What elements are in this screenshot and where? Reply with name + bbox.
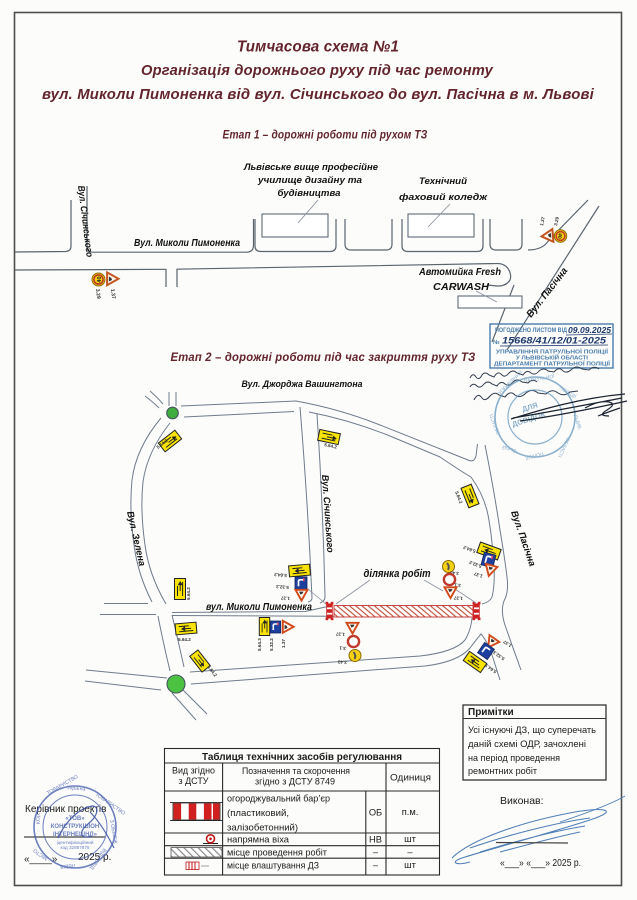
svg-text:40: 40 [97,276,103,282]
svg-text:Вул. Джорджа Вашингтона: Вул. Джорджа Вашингтона [242,379,363,390]
svg-text:–: – [407,847,413,857]
svg-text:вул. Миколи Пимоненка: вул. Миколи Пимоненка [206,602,312,613]
svg-text:ОБ: ОБ [369,808,382,818]
svg-text:5.64.2: 5.64.2 [178,637,191,642]
svg-text:шт: шт [404,834,416,844]
svg-text:Етап 1 – дорожні роботи під ру: Етап 1 – дорожні роботи під рухом ТЗ [223,130,428,142]
svg-text:Позначення та скорочення: Позначення та скорочення [242,766,350,776]
svg-text:Вид згідно: Вид згідно [172,766,215,776]
svg-text:3.1: 3.1 [339,645,346,651]
svg-text:5.32.2: 5.32.2 [269,638,274,651]
svg-text:місце влаштування ДЗ: місце влаштування ДЗ [227,861,319,871]
svg-text:УПРАВЛІННЯ ПАТРУЛЬНОЇ ПОЛІЦІЇ: УПРАВЛІННЯ ПАТРУЛЬНОЇ ПОЛІЦІЇ [496,349,609,356]
svg-text:будівництва: будівництва [278,188,341,199]
svg-text:НВ: НВ [369,835,382,845]
svg-text:1.37: 1.37 [280,595,290,601]
svg-text:У ЛЬВІВСЬКІЙ ОБЛАСТІ: У ЛЬВІВСЬКІЙ ОБЛАСТІ [516,354,589,362]
svg-text:1.37: 1.37 [453,595,463,601]
svg-text:ділянка робіт: ділянка робіт [364,568,431,580]
svg-text:ДЕПАРТАМЕНТ ПАТРУЛЬНОЇ ПОЛІЦІЇ: ДЕПАРТАМЕНТ ПАТРУЛЬНОЇ ПОЛІЦІЇ [494,361,611,368]
svg-text:огороджувальний бар’єр: огороджувальний бар’єр [227,794,330,804]
svg-text:Технічний: Технічний [419,176,467,187]
svg-text:Одиниця: Одиниця [390,773,431,783]
svg-text:залізобетонний): залізобетонний) [227,823,298,833]
svg-text:фаховий коледж: фаховий коледж [399,192,488,203]
svg-text:Вул. Миколи Пимоненка: Вул. Миколи Пимоненка [134,238,240,249]
svg-text:1.37: 1.37 [281,639,286,648]
svg-text:місце проведення робіт: місце проведення робіт [227,848,328,858]
svg-text:Автомийка Fresh: Автомийка Fresh [418,266,501,278]
svg-text:на період проведення: на період проведення [468,753,560,763]
svg-text:1.37: 1.37 [109,289,116,300]
svg-text:КОНСТРУКШІОН: КОНСТРУКШІОН [51,824,100,830]
svg-text:1.37: 1.37 [335,631,345,637]
svg-text:п.м.: п.м. [402,807,419,817]
svg-text:3.43: 3.43 [337,659,347,665]
svg-text:Усі існуючі ДЗ, що суперечать: Усі існуючі ДЗ, що суперечать [468,725,596,735]
svg-text:«___» «___» 2025 р.: «___» «___» 2025 р. [500,858,581,869]
svg-text:CARWASH: CARWASH [433,281,489,293]
svg-text:–: – [373,847,379,857]
svg-text:Львівське вище професійне: Львівське вище професійне [243,162,379,173]
svg-text:шт: шт [404,860,416,870]
svg-text:Таблиця технічних засобів регу: Таблиця технічних засобів регулювання [202,751,402,763]
svg-text:вул. Миколи Пимоненка від вул.: вул. Миколи Пимоненка від вул. Січинсько… [42,86,595,103]
svg-text:Виконав:: Виконав: [500,795,544,807]
svg-text:3.29: 3.29 [94,289,101,300]
svg-text:Етап 2 – дорожні роботи під ча: Етап 2 – дорожні роботи під час закриття… [171,352,476,364]
svg-text:№: № [493,339,500,346]
svg-text:КОД: КОД [35,813,42,824]
svg-text:5.64.2: 5.64.2 [186,587,191,600]
svg-text:5.64.3: 5.64.3 [257,638,262,651]
svg-text:Примітки: Примітки [468,707,514,718]
svg-text:напрямна віха: напрямна віха [227,835,290,845]
svg-text:ПОГОДЖЕНО ЛИСТОМ ВІД: ПОГОДЖЕНО ЛИСТОМ ВІД [495,328,568,334]
svg-text:згідно з ДСТУ 8749: згідно з ДСТУ 8749 [255,777,335,787]
svg-text:Тимчасова схема №1: Тимчасова схема №1 [237,39,399,56]
svg-text:Організація дорожнього руху пі: Організація дорожнього руху під час ремо… [141,62,493,79]
svg-text:–: – [373,860,379,870]
svg-text:ремонтних робіт: ремонтних робіт [468,766,538,776]
svg-text:(пластиковий,: (пластиковий, [227,808,289,818]
svg-text:даній схемі ОДР, зачохлені: даній схемі ОДР, зачохлені [468,739,586,749]
svg-text:з ДСТУ: з ДСТУ [179,776,209,786]
svg-text:училище дизайну та: училище дизайну та [257,175,362,186]
svg-text:09.09.2025: 09.09.2025 [568,325,611,335]
svg-text:код 32887876: код 32887876 [61,845,90,850]
